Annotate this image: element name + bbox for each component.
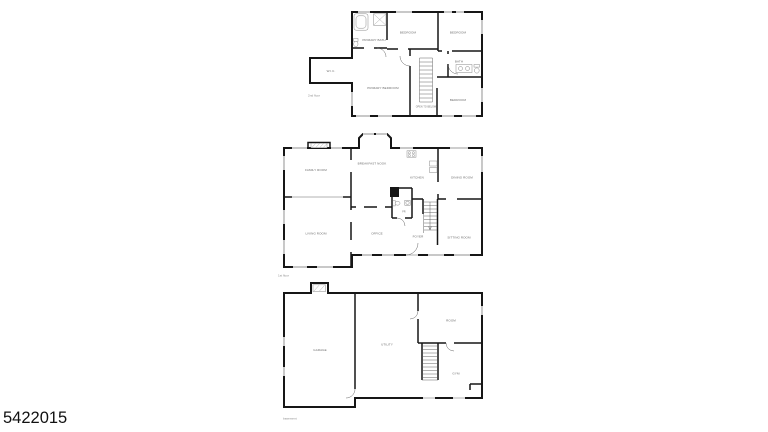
shower-icon [374,14,387,25]
stairs [422,346,438,380]
door-arc [377,48,386,57]
chimney-icon [313,285,326,292]
room-label: GARAGE [313,348,326,352]
photo-id-label: 5422015 [3,409,67,427]
door-arc [346,389,355,398]
room-label: PR [402,212,406,214]
room-label: KITCHEN [410,176,424,180]
floor-caption: basement [283,417,297,421]
first-floor-plan: FAMILY ROOM BREAKFAST NOOK KITCHEN DININ… [278,132,484,277]
toilet-icon [393,201,400,206]
room-label: FAMILY ROOM [305,168,327,172]
toilet-icon [354,39,359,47]
second-floor-plan: PRIMARY BATH BEDROOM BEDROOM BATH BEDROO… [308,10,484,117]
door-arc [397,218,405,226]
floor-plan-photo: PRIMARY BATH BEDROOM BEDROOM BATH BEDROO… [0,0,768,432]
room-label: LIVING ROOM [305,232,327,236]
door-arc [406,243,418,255]
room-label: BREAKFAST NOOK [358,162,387,166]
basement-plan: GARAGE UTILITY ROOM GYM basement [282,283,483,421]
chimney-icon [390,187,399,197]
interior-walls [355,293,482,390]
room-label: GYM [452,372,460,376]
door-arc [446,343,454,351]
room-label: PRIMARY BEDROOM [367,86,399,90]
stairs [424,202,438,233]
room-label: FOYER [413,235,425,239]
room-label: PRIMARY BATH [362,38,385,42]
room-label: W.I.C. [327,69,336,73]
interior-walls [284,148,482,267]
sink-icon [405,200,410,205]
room-label: BATH [455,60,463,64]
room-label: BEDROOM [450,98,467,102]
room-label: UTILITY [381,343,393,347]
door-arc [400,56,410,66]
room-label: BEDROOM [400,31,417,35]
room-label: OFFICE [371,232,383,236]
room-label: DINING ROOM [451,176,473,180]
floor-caption: 2nd floor [308,94,320,98]
toilet-icon [474,65,480,74]
room-label: OPEN TO BELOW [416,107,437,109]
vanity-sinks-icon [456,65,472,73]
range-icon [407,151,416,157]
first-floor-outline [284,134,482,267]
floor-caption: 1st floor [278,274,289,278]
floor-plan-image: PRIMARY BATH BEDROOM BEDROOM BATH BEDROO… [0,0,768,432]
bathtub-icon [354,14,368,30]
room-label: ROOM [446,319,456,323]
room-label: SITTING ROOM [447,236,471,240]
stairs [420,58,433,102]
counter-icon [430,161,438,173]
fireplace-icon [308,143,330,149]
room-label: BEDROOM [450,31,467,35]
doorway [350,62,353,76]
door-arc [410,311,418,319]
